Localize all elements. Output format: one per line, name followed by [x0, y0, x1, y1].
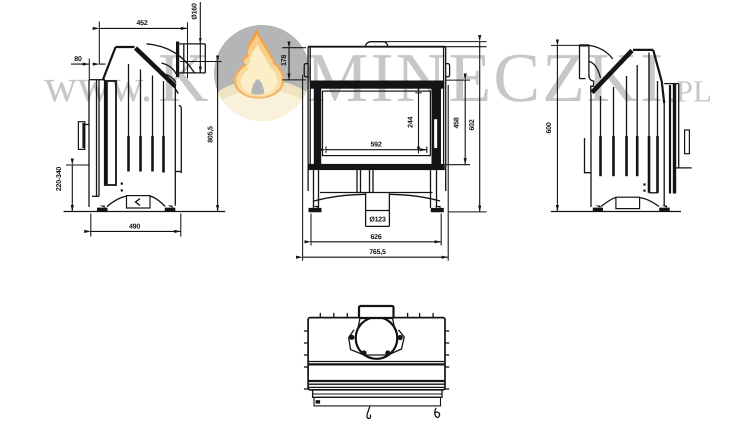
- svg-text:765,5: 765,5: [369, 249, 386, 256]
- svg-text:Ø123: Ø123: [369, 216, 386, 224]
- svg-text:458: 458: [454, 117, 461, 128]
- svg-text:www.: www.: [44, 60, 152, 111]
- svg-text:626: 626: [370, 234, 381, 241]
- svg-text:805,5: 805,5: [208, 126, 215, 143]
- svg-text:80: 80: [74, 56, 82, 63]
- svg-text:178: 178: [281, 55, 288, 66]
- svg-text:Ø160: Ø160: [191, 3, 199, 20]
- svg-text:592: 592: [370, 142, 381, 149]
- svg-text:220-340: 220-340: [56, 167, 63, 192]
- svg-text:244: 244: [408, 116, 415, 127]
- svg-text:490: 490: [129, 223, 140, 230]
- svg-text:600: 600: [546, 122, 553, 133]
- svg-text:452: 452: [136, 20, 147, 27]
- svg-text:602: 602: [469, 119, 476, 130]
- svg-text:MINECZKI: MINECZKI: [306, 40, 663, 117]
